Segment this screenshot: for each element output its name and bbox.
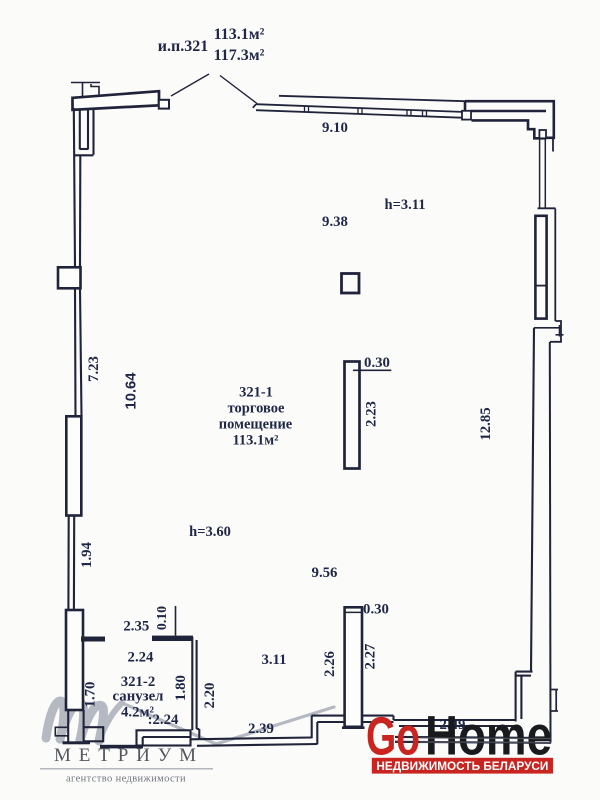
svg-text:2.39: 2.39 (248, 721, 274, 737)
svg-text:12.85: 12.85 (478, 407, 494, 440)
svg-text:3.11: 3.11 (261, 652, 286, 668)
svg-text:и.п.321: и.п.321 (158, 38, 208, 55)
svg-text:h=3.60: h=3.60 (189, 524, 231, 540)
svg-text:113.1м²: 113.1м² (214, 26, 265, 43)
svg-text::2.24: :2.24 (148, 712, 179, 728)
svg-text:Home: Home (425, 704, 552, 767)
svg-text:агентство недвижимости: агентство недвижимости (66, 774, 186, 785)
svg-text:10.64: 10.64 (124, 372, 140, 410)
svg-text:1.94: 1.94 (79, 541, 95, 567)
svg-text:9.56: 9.56 (312, 565, 338, 581)
svg-text:7.23: 7.23 (86, 356, 102, 382)
svg-text:2.20: 2.20 (202, 683, 218, 709)
svg-text:113.1м²: 113.1м² (232, 433, 278, 449)
svg-text:НЕДВИЖИМОСТЬ БЕЛАРУСИ: НЕДВИЖИМОСТЬ БЕЛАРУСИ (376, 761, 548, 773)
svg-text:0.10: 0.10 (154, 606, 169, 630)
svg-text:2.23: 2.23 (364, 401, 380, 427)
svg-text:9.38: 9.38 (322, 214, 348, 230)
svg-text:117.3м²: 117.3м² (214, 47, 265, 64)
svg-text:помещение: помещение (219, 417, 293, 433)
svg-text:Go: Go (366, 707, 420, 767)
svg-text:0.30: 0.30 (364, 355, 390, 371)
svg-text:санузел: санузел (113, 689, 164, 705)
svg-text:1.70: 1.70 (83, 682, 99, 708)
svg-text:h=3.11: h=3.11 (385, 197, 426, 213)
svg-text:2.27: 2.27 (363, 643, 379, 669)
svg-text:2.24: 2.24 (128, 650, 154, 666)
svg-text:321-1: 321-1 (239, 385, 273, 401)
svg-text:1.80: 1.80 (173, 675, 189, 701)
svg-text:торговое: торговое (228, 401, 285, 417)
svg-text:0.30: 0.30 (363, 602, 389, 618)
svg-text:2.35: 2.35 (123, 619, 149, 635)
svg-text:9.10: 9.10 (322, 120, 348, 136)
svg-text:2.26: 2.26 (322, 651, 338, 677)
